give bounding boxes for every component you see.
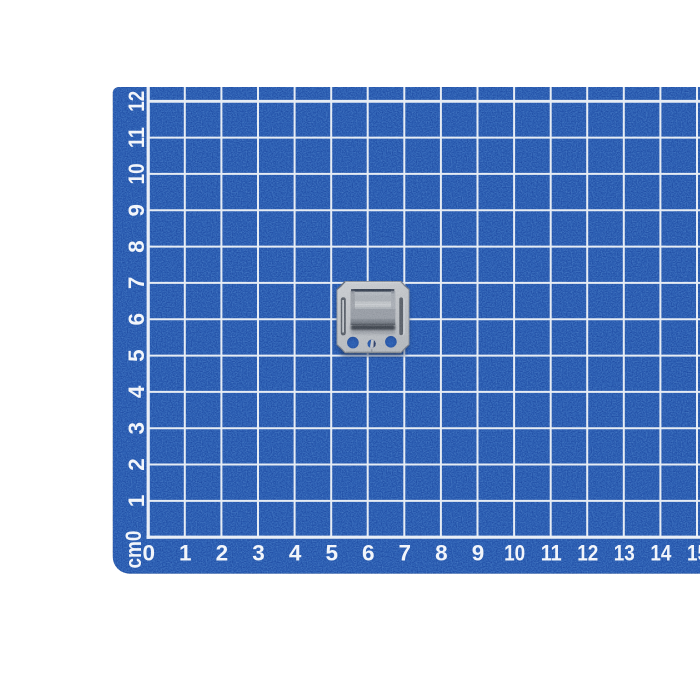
- svg-text:10: 10: [504, 540, 525, 565]
- svg-text:11: 11: [541, 540, 562, 565]
- svg-text:5: 5: [124, 349, 149, 362]
- svg-text:4: 4: [289, 540, 302, 565]
- svg-text:7: 7: [399, 540, 412, 565]
- svg-text:10: 10: [124, 163, 149, 184]
- svg-text:15: 15: [687, 540, 700, 565]
- svg-text:12: 12: [124, 91, 149, 112]
- svg-text:2: 2: [216, 540, 229, 565]
- svg-text:6: 6: [124, 313, 149, 326]
- svg-text:2: 2: [124, 458, 149, 471]
- svg-text:9: 9: [472, 540, 485, 565]
- svg-text:9: 9: [124, 204, 149, 217]
- svg-text:3: 3: [124, 422, 149, 435]
- svg-text:4: 4: [124, 385, 149, 398]
- svg-text:8: 8: [124, 240, 149, 253]
- svg-text:14: 14: [650, 540, 671, 565]
- svg-text:12: 12: [577, 540, 598, 565]
- svg-text:7: 7: [124, 277, 149, 290]
- svg-text:11: 11: [124, 127, 149, 148]
- svg-text:8: 8: [435, 540, 448, 565]
- svg-text:cm0: cm0: [121, 531, 146, 569]
- svg-text:5: 5: [325, 540, 338, 565]
- svg-text:13: 13: [614, 540, 635, 565]
- svg-text:6: 6: [362, 540, 375, 565]
- svg-text:1: 1: [124, 495, 149, 508]
- svg-text:3: 3: [252, 540, 265, 565]
- svg-text:1: 1: [179, 540, 192, 565]
